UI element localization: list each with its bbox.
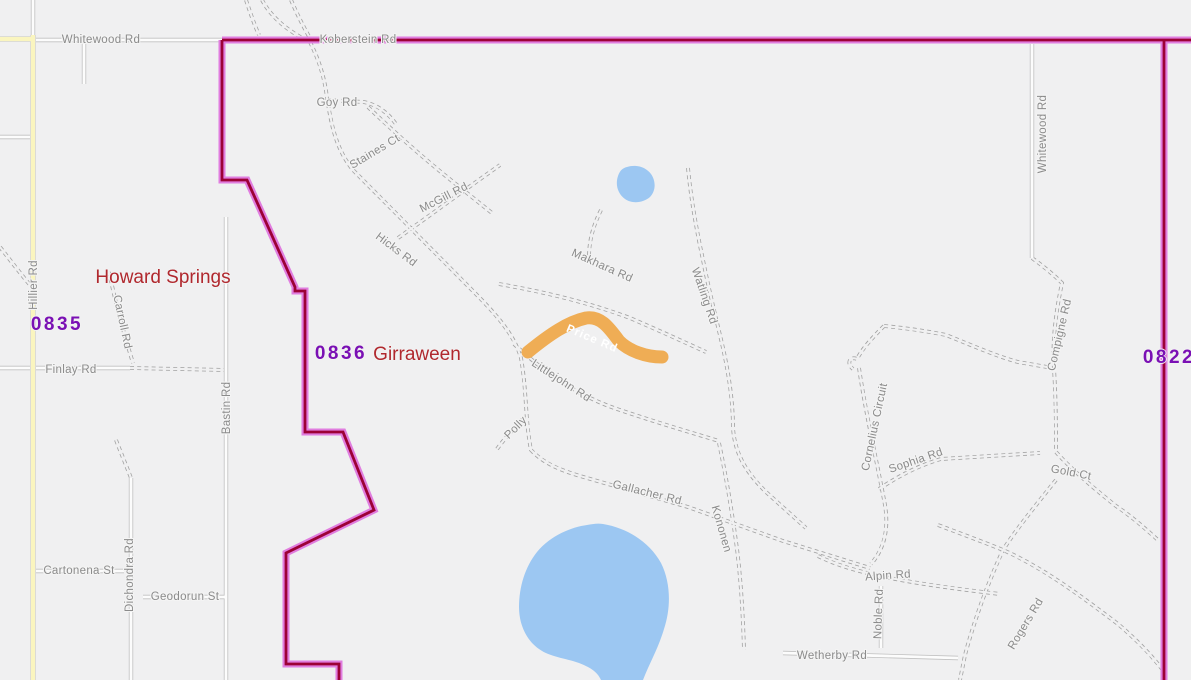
road-label-polly: Polly xyxy=(502,414,529,441)
road-label-carroll-rd: Carroll Rd xyxy=(110,294,133,350)
road-label-staines-ct: Staines Ct xyxy=(348,132,402,171)
road-label-gold-ct: Gold Ct xyxy=(1050,463,1093,483)
road-label-dichondra-rd: Dichondra Rd xyxy=(124,538,136,612)
road-label-kononen: Kononen xyxy=(709,504,734,554)
road-label-watling-rd: Watling Rd xyxy=(689,266,719,326)
road-label-geodorun-st: Geodorun St xyxy=(151,591,220,603)
road-label-whitewood-rd-east: Whitewood Rd xyxy=(1037,95,1049,173)
locality-label-howard-springs: Howard Springs xyxy=(95,267,230,289)
road-label-price-rd: Price Rd xyxy=(564,323,619,355)
road-label-bastin-rd: Bastin Rd xyxy=(221,382,233,435)
road-label-sophia-rd: Sophia Rd xyxy=(887,446,944,476)
road-label-finlay-rd: Finlay Rd xyxy=(45,364,96,376)
postcode-label-0835: 0835 xyxy=(31,314,83,336)
road-label-cornelius-circuit: Cornelius Circuit xyxy=(860,382,890,472)
road-label-whitewood-rd: Whitewood Rd xyxy=(62,34,140,46)
road-label-littlejohn-rd: Littlejohn Rd xyxy=(529,357,592,404)
map-viewport[interactable]: Whitewood Rd Koberstein Rd Goy Rd Staine… xyxy=(0,0,1191,680)
road-label-wetherby-rd: Wetherby Rd xyxy=(797,650,867,662)
road-label-mcgill-rd: McGill Rd xyxy=(418,181,470,216)
road-label-gallacher-rd: Gallacher Rd xyxy=(611,479,683,508)
road-label-compigne-rd: Compigne Rd xyxy=(1046,298,1074,372)
road-label-cartonena-st: Cartonena St xyxy=(43,565,114,577)
road-label-koberstein-rd: Koberstein Rd xyxy=(320,34,397,46)
postcode-label-0822: 0822 xyxy=(1143,347,1191,369)
road-label-noble-rd: Noble Rd xyxy=(872,589,886,640)
road-label-hicks-rd: Hicks Rd xyxy=(373,231,419,270)
road-label-goy-rd: Goy Rd xyxy=(317,97,358,109)
road-label-hillier-rd: Hillier Rd xyxy=(28,260,40,310)
locality-label-girraween: Girraween xyxy=(373,344,461,366)
road-label-makhara-rd: Makhara Rd xyxy=(570,247,635,285)
road-label-rogers-rd: Rogers Rd xyxy=(1006,596,1046,652)
road-label-alpin-rd: Alpin Rd xyxy=(865,568,912,583)
map-labels: Whitewood Rd Koberstein Rd Goy Rd Staine… xyxy=(0,0,1191,680)
postcode-label-0836: 0836 xyxy=(315,343,367,365)
